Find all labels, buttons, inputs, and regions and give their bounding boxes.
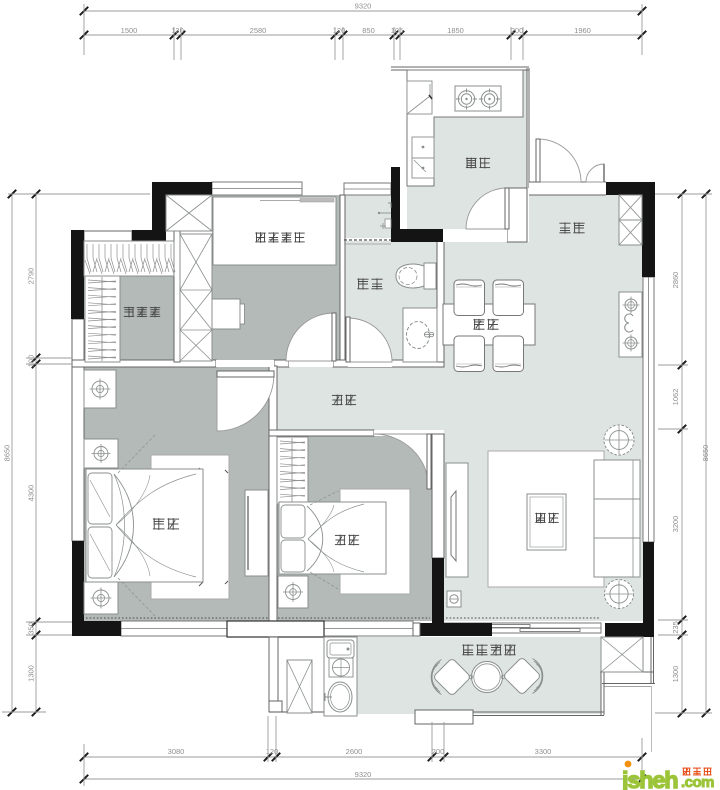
svg-text:4300: 4300	[27, 485, 36, 502]
svg-text:2860: 2860	[671, 272, 680, 289]
svg-text:9320: 9320	[355, 770, 372, 779]
svg-text:200: 200	[432, 747, 445, 756]
svg-text:1960: 1960	[574, 26, 591, 35]
svg-text:1062: 1062	[671, 389, 680, 406]
svg-text:850: 850	[362, 26, 375, 35]
svg-text:9320: 9320	[355, 2, 372, 11]
svg-text:2790: 2790	[27, 268, 36, 285]
svg-text:105: 105	[391, 26, 404, 35]
svg-text:3080: 3080	[168, 747, 185, 756]
svg-text:350: 350	[27, 622, 36, 635]
svg-text:100: 100	[27, 355, 36, 368]
svg-text:1850: 1850	[447, 26, 464, 35]
svg-text:8650: 8650	[3, 445, 12, 462]
svg-text:200: 200	[511, 26, 524, 35]
svg-text:3300: 3300	[535, 747, 552, 756]
svg-text:1500: 1500	[121, 26, 138, 35]
svg-text:8650: 8650	[701, 445, 710, 462]
svg-text:.com: .com	[681, 774, 714, 790]
svg-text:2600: 2600	[346, 747, 363, 756]
svg-text:jsheh: jsheh	[621, 767, 677, 790]
svg-text:120: 120	[171, 26, 184, 35]
svg-text:1300: 1300	[671, 666, 680, 683]
svg-text:1300: 1300	[27, 665, 36, 682]
svg-text:235: 235	[671, 621, 680, 634]
svg-text:3200: 3200	[671, 516, 680, 533]
svg-text:2580: 2580	[250, 26, 267, 35]
